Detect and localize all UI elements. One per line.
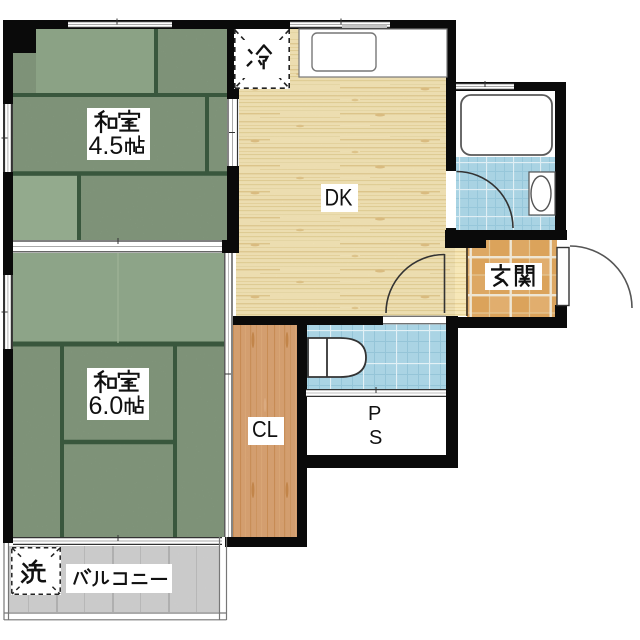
svg-text:6.0: 6.0 [89,392,124,420]
svg-text:DK: DK [325,185,353,212]
svg-text:S: S [369,427,382,449]
svg-text:P: P [368,403,381,425]
svg-text:CL: CL [252,416,278,442]
svg-text:4.5: 4.5 [89,132,124,160]
